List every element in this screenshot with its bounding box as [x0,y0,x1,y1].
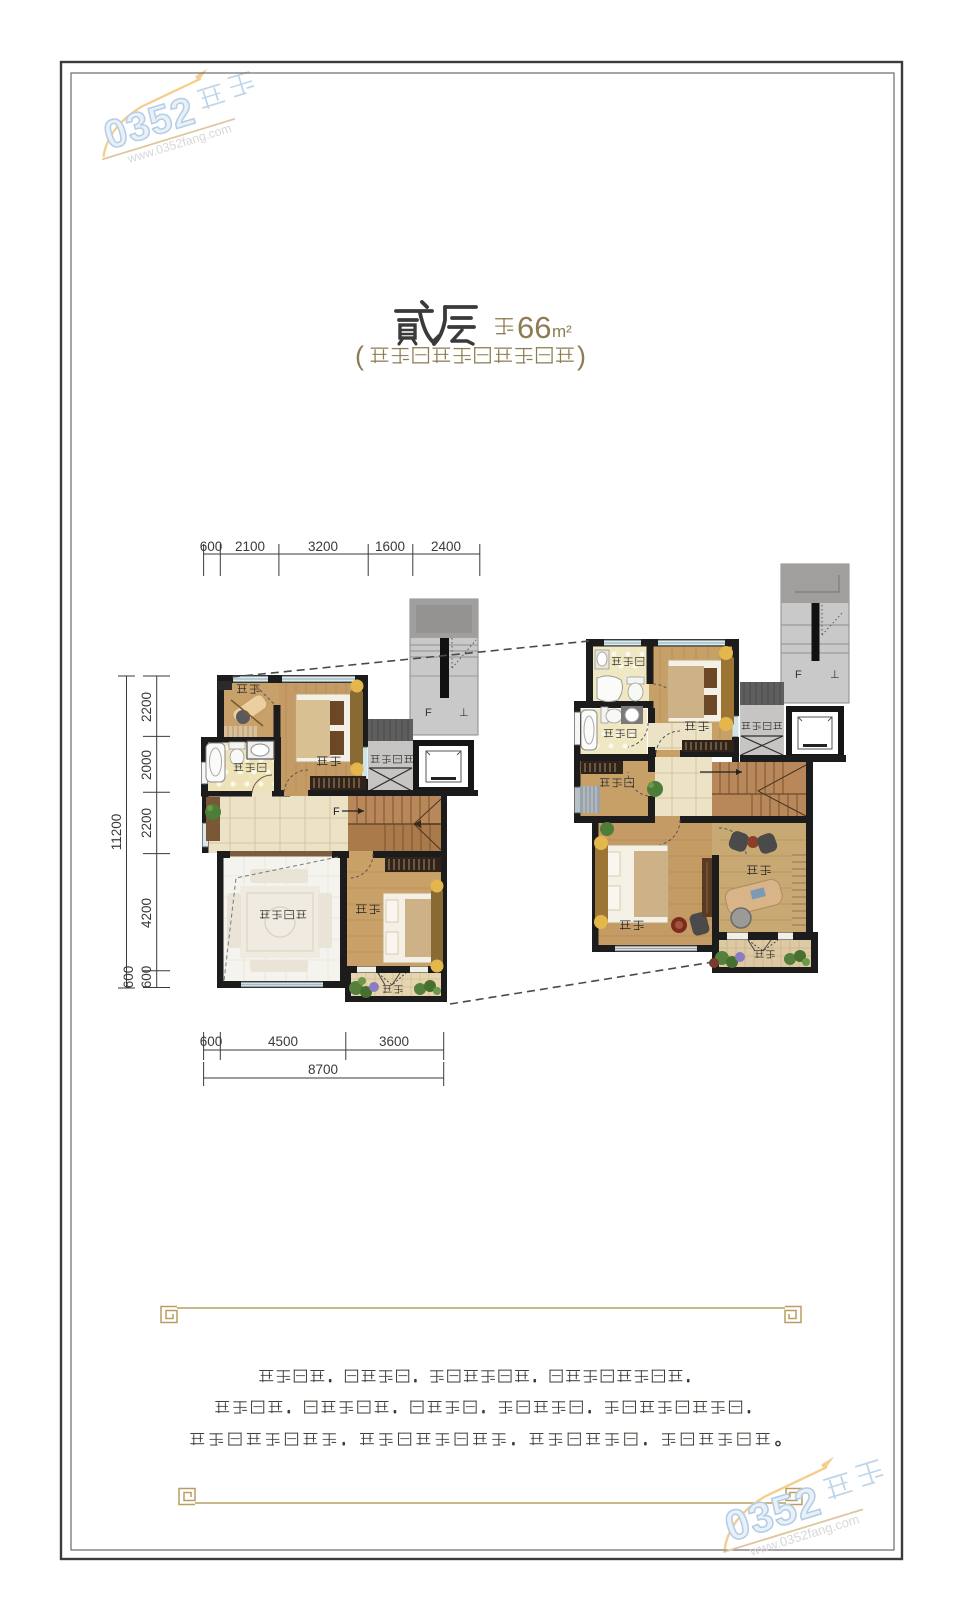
svg-text:3600: 3600 [379,1034,409,1049]
svg-text:): ) [577,341,586,371]
svg-text:m²: m² [552,322,572,341]
svg-text:600: 600 [200,539,223,554]
svg-text:600: 600 [200,1034,223,1049]
svg-text:F: F [425,707,432,719]
svg-text:F: F [333,806,340,818]
svg-text:2200: 2200 [139,808,154,838]
svg-text:(: ( [355,341,364,371]
svg-text:2000: 2000 [139,750,154,780]
svg-text:3200: 3200 [308,539,338,554]
svg-text:⊥: ⊥ [830,669,840,681]
svg-text:8700: 8700 [308,1062,338,1077]
svg-text:2100: 2100 [235,539,265,554]
svg-text:11200: 11200 [109,814,124,851]
svg-text:1600: 1600 [375,539,405,554]
svg-text:F: F [795,669,802,681]
svg-text:4200: 4200 [139,898,154,928]
svg-text:2200: 2200 [139,692,154,722]
svg-text:600: 600 [121,966,136,989]
svg-text:600: 600 [139,966,154,989]
svg-text:66: 66 [517,310,551,345]
svg-text:2400: 2400 [431,539,461,554]
svg-text:4500: 4500 [268,1034,298,1049]
svg-text:⊥: ⊥ [459,707,469,719]
